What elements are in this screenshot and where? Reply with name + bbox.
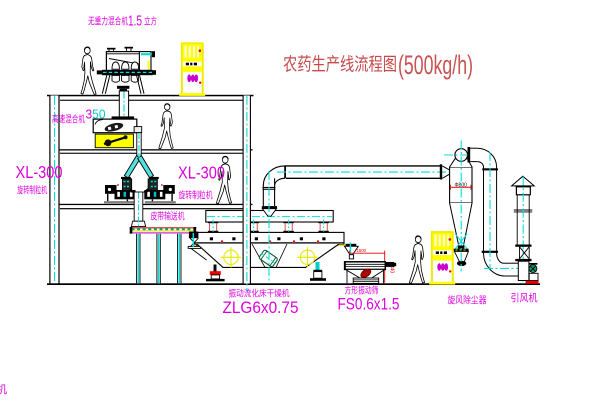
svg-text:ZLG6x0.75: ZLG6x0.75 bbox=[223, 298, 299, 317]
svg-text:(500kg/h): (500kg/h) bbox=[398, 50, 473, 80]
svg-text:农药生产线流程图: 农药生产线流程图 bbox=[283, 55, 397, 75]
svg-text:立方: 立方 bbox=[144, 16, 157, 28]
svg-text:XL-300: XL-300 bbox=[16, 162, 63, 182]
svg-text:机: 机 bbox=[0, 382, 7, 396]
svg-text:350: 350 bbox=[86, 107, 106, 122]
svg-text:皮带输送机: 皮带输送机 bbox=[151, 211, 185, 223]
svg-text:1500: 1500 bbox=[357, 248, 367, 253]
svg-text:振动流化床干燥机: 振动流化床干燥机 bbox=[229, 288, 290, 299]
svg-text:1.5: 1.5 bbox=[128, 13, 142, 30]
svg-text:引风机: 引风机 bbox=[511, 292, 538, 305]
svg-text:旋转制粒机: 旋转制粒机 bbox=[17, 185, 47, 197]
svg-text:XL-300: XL-300 bbox=[178, 163, 225, 183]
svg-text:FS0.6x1.5: FS0.6x1.5 bbox=[338, 295, 400, 314]
svg-text:无重力混合机: 无重力混合机 bbox=[88, 16, 128, 28]
svg-text:高速混合机: 高速混合机 bbox=[52, 114, 85, 126]
svg-text:旋风除尘器: 旋风除尘器 bbox=[448, 295, 487, 307]
svg-text:旋转制粒机: 旋转制粒机 bbox=[179, 190, 213, 202]
